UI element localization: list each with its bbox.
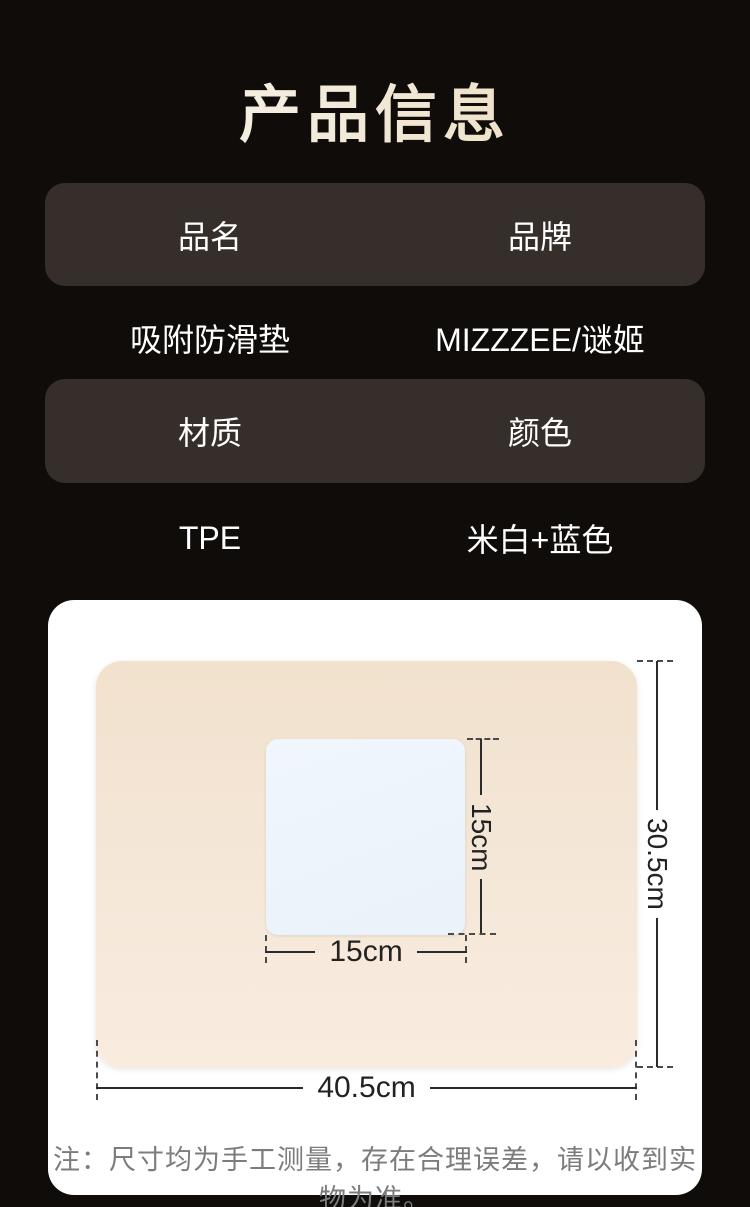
- mat-center-square: [266, 739, 465, 935]
- spec-value-color: 米白+蓝色: [375, 516, 705, 560]
- dimension-inner-height: 15cm: [466, 739, 496, 935]
- page-title: 产品信息: [0, 64, 750, 154]
- dim-line-segment: [430, 1087, 637, 1089]
- spec-header-product-name: 品名: [45, 183, 375, 286]
- spec-value-row-2: TPE 米白+蓝色: [45, 516, 705, 560]
- outer-height-label: 30.5cm: [641, 818, 673, 910]
- product-info-page: 产品信息 品名 品牌 吸附防滑垫 MIZZZEE/谜姬 材质 颜色 TPE 米白…: [0, 0, 750, 1207]
- dimension-inner-width: 15cm: [265, 934, 467, 970]
- spec-header-color: 颜色: [375, 379, 705, 483]
- dim-line-segment: [656, 661, 658, 810]
- dim-line-segment: [480, 879, 482, 935]
- spec-value-product-name: 吸附防滑垫: [45, 316, 375, 360]
- dimension-diagram-card: 15cm 15cm 30.5cm 40.5cm 注：尺寸均为手工测量，存在合理误: [48, 600, 702, 1195]
- dimension-outer-width: 40.5cm: [96, 1070, 637, 1106]
- dim-line-segment: [417, 951, 467, 953]
- dimension-outer-height: 30.5cm: [642, 661, 672, 1067]
- measurement-note: 注：尺寸均为手工测量，存在合理误差，请以收到实物为准。: [48, 1138, 702, 1207]
- dim-line-segment: [480, 739, 482, 795]
- spec-value-brand: MIZZZEE/谜姬: [375, 316, 705, 360]
- outer-width-label: 40.5cm: [317, 1071, 415, 1105]
- spec-header-row-1: 品名 品牌: [45, 183, 705, 286]
- spec-header-material: 材质: [45, 379, 375, 483]
- dim-line-segment: [96, 1087, 303, 1089]
- inner-width-label: 15cm: [329, 935, 402, 969]
- spec-header-row-2: 材质 颜色: [45, 379, 705, 483]
- spec-header-brand: 品牌: [375, 183, 705, 286]
- inner-height-label: 15cm: [465, 803, 497, 871]
- dim-line-segment: [265, 951, 315, 953]
- spec-value-material: TPE: [45, 516, 375, 560]
- spec-value-row-1: 吸附防滑垫 MIZZZEE/谜姬: [45, 316, 705, 360]
- dim-line-segment: [656, 918, 658, 1067]
